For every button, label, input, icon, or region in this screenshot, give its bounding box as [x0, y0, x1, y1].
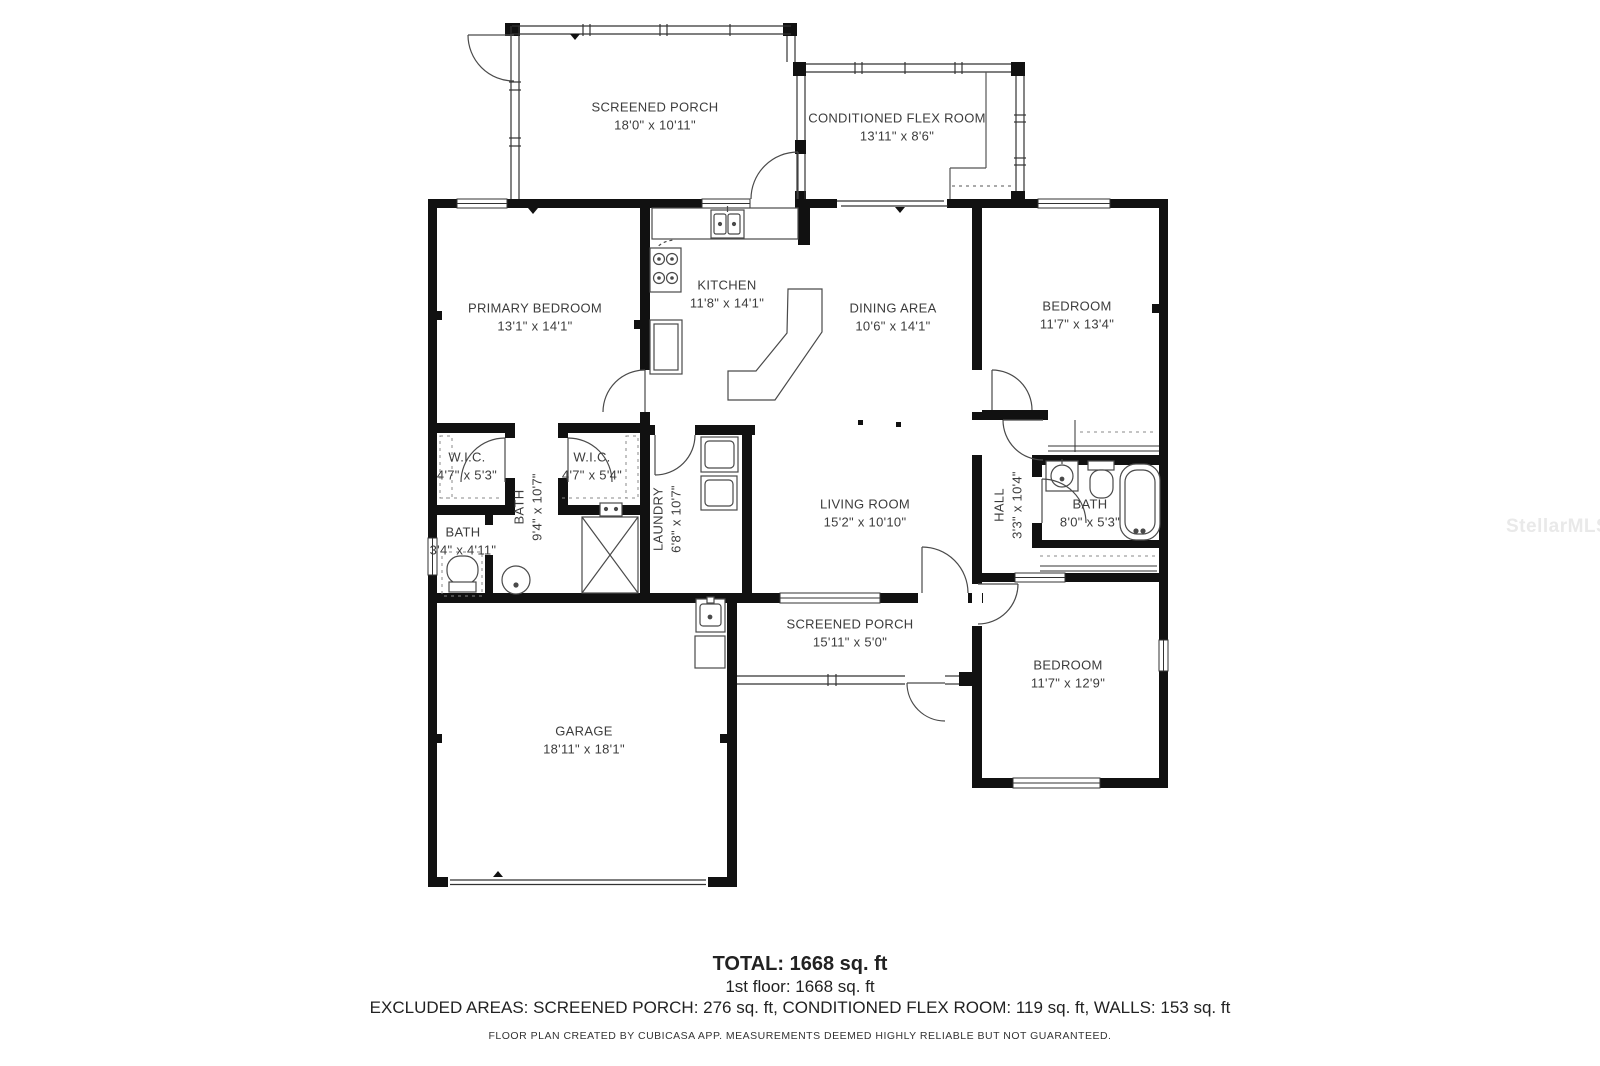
- door-porch-top: [468, 35, 514, 81]
- door-living-porch: [922, 547, 968, 593]
- room-name: GARAGE: [543, 723, 625, 741]
- toilet-fixture: [447, 556, 478, 584]
- room-name: HALL: [991, 471, 1009, 539]
- room-dims: 13'11" x 8'6": [808, 127, 985, 145]
- room-dims: 9'4" x 10'7": [528, 473, 546, 541]
- toilet-fixture-2: [1090, 470, 1113, 498]
- room-label-hall: HALL 3'3" x 10'4": [991, 471, 1026, 539]
- room-label-wic-right: W.I.C. 4'7" x 5'4": [562, 449, 622, 484]
- door-porch-kitchen: [751, 152, 798, 199]
- room-name: KITCHEN: [690, 277, 764, 295]
- room-name: BATH: [511, 473, 529, 541]
- refrigerator-fixture: [650, 320, 682, 374]
- room-label-kitchen: KITCHEN 11'8" x 14'1": [690, 277, 764, 312]
- room-name: BEDROOM: [1040, 298, 1114, 316]
- room-dims: 11'7" x 12'9": [1031, 674, 1105, 692]
- room-name: SCREENED PORCH: [592, 99, 719, 117]
- room-name: SCREENED PORCH: [787, 616, 914, 634]
- room-label-screened-porch-bottom: SCREENED PORCH 15'11" x 5'0": [787, 616, 914, 651]
- room-label-bedroom-bottom-right: BEDROOM 11'7" x 12'9": [1031, 657, 1105, 692]
- room-dims: 6'8" x 10'7": [667, 485, 685, 553]
- first-floor-area-text: 1st floor: 1668 sq. ft: [0, 977, 1600, 997]
- bathtub-fixture: [1120, 464, 1160, 540]
- room-dims: 4'7" x 5'3": [437, 466, 497, 484]
- excluded-areas-text: EXCLUDED AREAS: SCREENED PORCH: 276 sq. …: [0, 998, 1600, 1018]
- room-name: PRIMARY BEDROOM: [468, 300, 602, 318]
- room-name: W.I.C.: [437, 449, 497, 467]
- room-label-primary-bedroom: PRIMARY BEDROOM 13'1" x 14'1": [468, 300, 602, 335]
- toilet-tank: [1088, 461, 1114, 470]
- room-label-bath-small: BATH 3'4" x 4'11": [430, 524, 497, 559]
- room-name: LAUNDRY: [650, 485, 668, 553]
- room-label-garage: GARAGE 18'11" x 18'1": [543, 723, 625, 758]
- room-dims: 11'7" x 13'4": [1040, 315, 1114, 333]
- room-label-bath-hall: BATH 8'0" x 5'3": [1060, 496, 1120, 531]
- room-name: BATH: [1060, 496, 1120, 514]
- room-label-screened-porch-top: SCREENED PORCH 18'0" x 10'11": [592, 99, 719, 134]
- room-dims: 18'11" x 18'1": [543, 740, 625, 758]
- room-label-bath-primary: BATH 9'4" x 10'7": [511, 473, 546, 541]
- door-porch-exit: [907, 683, 945, 721]
- room-dims: 3'3" x 10'4": [1008, 471, 1026, 539]
- room-name: LIVING ROOM: [820, 496, 910, 514]
- total-area-text: TOTAL: 1668 sq. ft: [0, 953, 1600, 976]
- room-dims: 3'4" x 4'11": [430, 541, 497, 559]
- room-label-conditioned-flex-room: CONDITIONED FLEX ROOM 13'11" x 8'6": [808, 110, 985, 145]
- door-arcs: [461, 35, 1086, 721]
- stellar-mls-watermark: StellarMLS: [1506, 516, 1600, 538]
- door-hall-closet: [1003, 420, 1043, 460]
- room-name: W.I.C.: [562, 449, 622, 467]
- garage-door: [448, 877, 708, 887]
- floor-plan-page: SCREENED PORCH 18'0" x 10'11" CONDITIONE…: [0, 0, 1600, 1066]
- room-label-bedroom-top-right: BEDROOM 11'7" x 13'4": [1040, 298, 1114, 333]
- room-dims: 15'2" x 10'10": [820, 513, 910, 531]
- door-primary-bedroom: [603, 370, 645, 412]
- room-dims: 13'1" x 14'1": [468, 317, 602, 335]
- room-name: CONDITIONED FLEX ROOM: [808, 110, 985, 128]
- door-bedroom-bottom: [978, 584, 1018, 624]
- water-heater-fixture: [695, 636, 725, 668]
- room-dims: 8'0" x 5'3": [1060, 513, 1120, 531]
- stove-fixture: [650, 248, 681, 292]
- room-label-laundry: LAUNDRY 6'8" x 10'7": [650, 485, 685, 553]
- room-name: BATH: [430, 524, 497, 542]
- room-label-dining-area: DINING AREA 10'6" x 14'1": [849, 300, 936, 335]
- room-label-living-room: LIVING ROOM 15'2" x 10'10": [820, 496, 910, 531]
- room-dims: 4'7" x 5'4": [562, 466, 622, 484]
- door-bedroom-top: [992, 370, 1032, 410]
- floor-plan-drawing: [0, 0, 1600, 1066]
- room-dims: 15'11" x 5'0": [787, 633, 914, 651]
- sink-fixture: [502, 566, 530, 594]
- disclaimer-text: FLOOR PLAN CREATED BY CUBICASA APP. MEAS…: [0, 1030, 1600, 1042]
- room-label-wic-left: W.I.C. 4'7" x 5'3": [437, 449, 497, 484]
- room-dims: 10'6" x 14'1": [849, 317, 936, 335]
- door-openings: [485, 198, 1042, 626]
- room-dims: 11'8" x 14'1": [690, 294, 764, 312]
- room-dims: 18'0" x 10'11": [592, 116, 719, 134]
- door-laundry: [655, 435, 695, 475]
- room-name: DINING AREA: [849, 300, 936, 318]
- room-name: BEDROOM: [1031, 657, 1105, 675]
